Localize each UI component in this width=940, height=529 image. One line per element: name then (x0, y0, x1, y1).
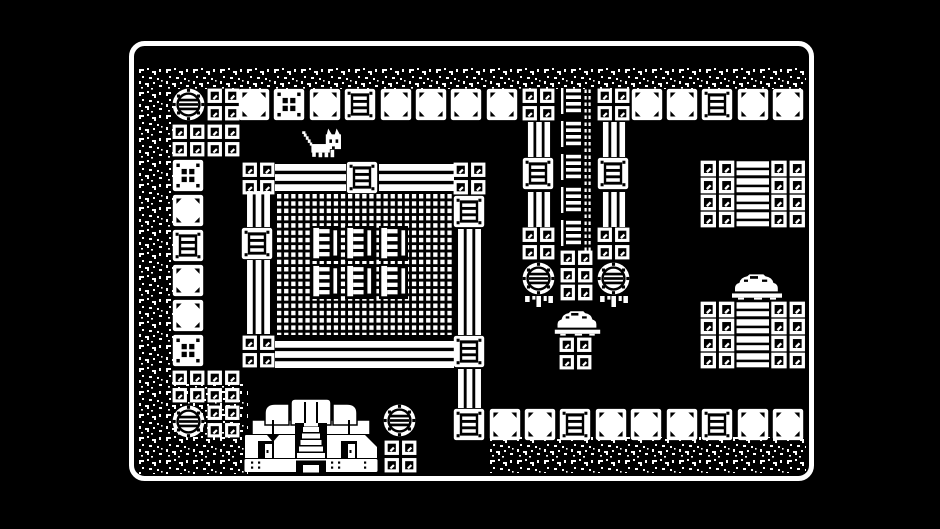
crate-block-tile (345, 89, 375, 120)
crate-block-tile (560, 409, 590, 440)
manhole-tile (598, 263, 630, 295)
vertical-rail (528, 192, 550, 227)
vertical-rail (247, 191, 270, 227)
vertical-rail (458, 369, 481, 408)
shelf-rack (345, 264, 374, 299)
manhole-tile (523, 263, 555, 295)
crate-block-tile (454, 196, 484, 227)
dotted-block-tile (274, 89, 304, 120)
shelf-rack (311, 264, 340, 299)
stone-block-tile (239, 89, 269, 120)
crate-block-tile (347, 162, 377, 193)
shelf-rack (379, 264, 408, 299)
vertical-rail (247, 260, 270, 334)
crate-block-tile (598, 158, 628, 189)
stone-block-tile (667, 89, 697, 120)
stone-block-tile (596, 409, 626, 440)
crate-block-tile (702, 89, 732, 120)
stone-block-tile (490, 409, 520, 440)
horizontal-rail (275, 341, 454, 368)
crate-block-tile (523, 158, 553, 189)
manhole-tile (173, 89, 205, 121)
stone-block-tile (773, 89, 803, 120)
horizontal-rail (275, 164, 346, 191)
vertical-rail (458, 229, 481, 335)
stone-block-tile (173, 265, 203, 296)
shelf-rack (311, 226, 340, 261)
stone-block-tile (667, 409, 697, 440)
horizontal-rail (379, 164, 454, 191)
crate-block-tile (702, 409, 732, 440)
dirt-speckles (487, 437, 806, 473)
crate-block-tile (242, 228, 272, 259)
game-viewport[interactable] (0, 0, 940, 529)
ladder-track (558, 88, 594, 252)
vertical-rail (603, 122, 625, 157)
crate-block-tile (454, 409, 484, 440)
dirt-speckles (137, 67, 173, 410)
stone-block-tile (173, 195, 203, 226)
stone-block-tile (738, 89, 768, 120)
stone-block-tile (310, 89, 340, 120)
stone-block-tile (487, 89, 517, 120)
manhole-tile (173, 406, 205, 438)
dotted-block-tile (173, 335, 203, 366)
crate-block-tile (454, 336, 484, 367)
stone-block-tile (416, 89, 446, 120)
stone-block-tile (525, 409, 555, 440)
vertical-rail (603, 192, 625, 227)
stone-block-tile (773, 409, 803, 440)
stone-block-tile (632, 89, 662, 120)
shelf-rack (379, 226, 408, 261)
dirt-speckles (148, 67, 806, 89)
stone-block-tile (173, 300, 203, 331)
manhole-tile (384, 405, 416, 437)
stone-block-tile (451, 89, 481, 120)
stone-block-tile (381, 89, 411, 120)
dotted-block-tile (173, 160, 203, 191)
shelf-rack (345, 226, 374, 261)
stone-block-tile (631, 409, 661, 440)
vertical-rail (528, 122, 550, 157)
stone-block-tile (738, 409, 768, 440)
crate-block-tile (173, 230, 203, 261)
